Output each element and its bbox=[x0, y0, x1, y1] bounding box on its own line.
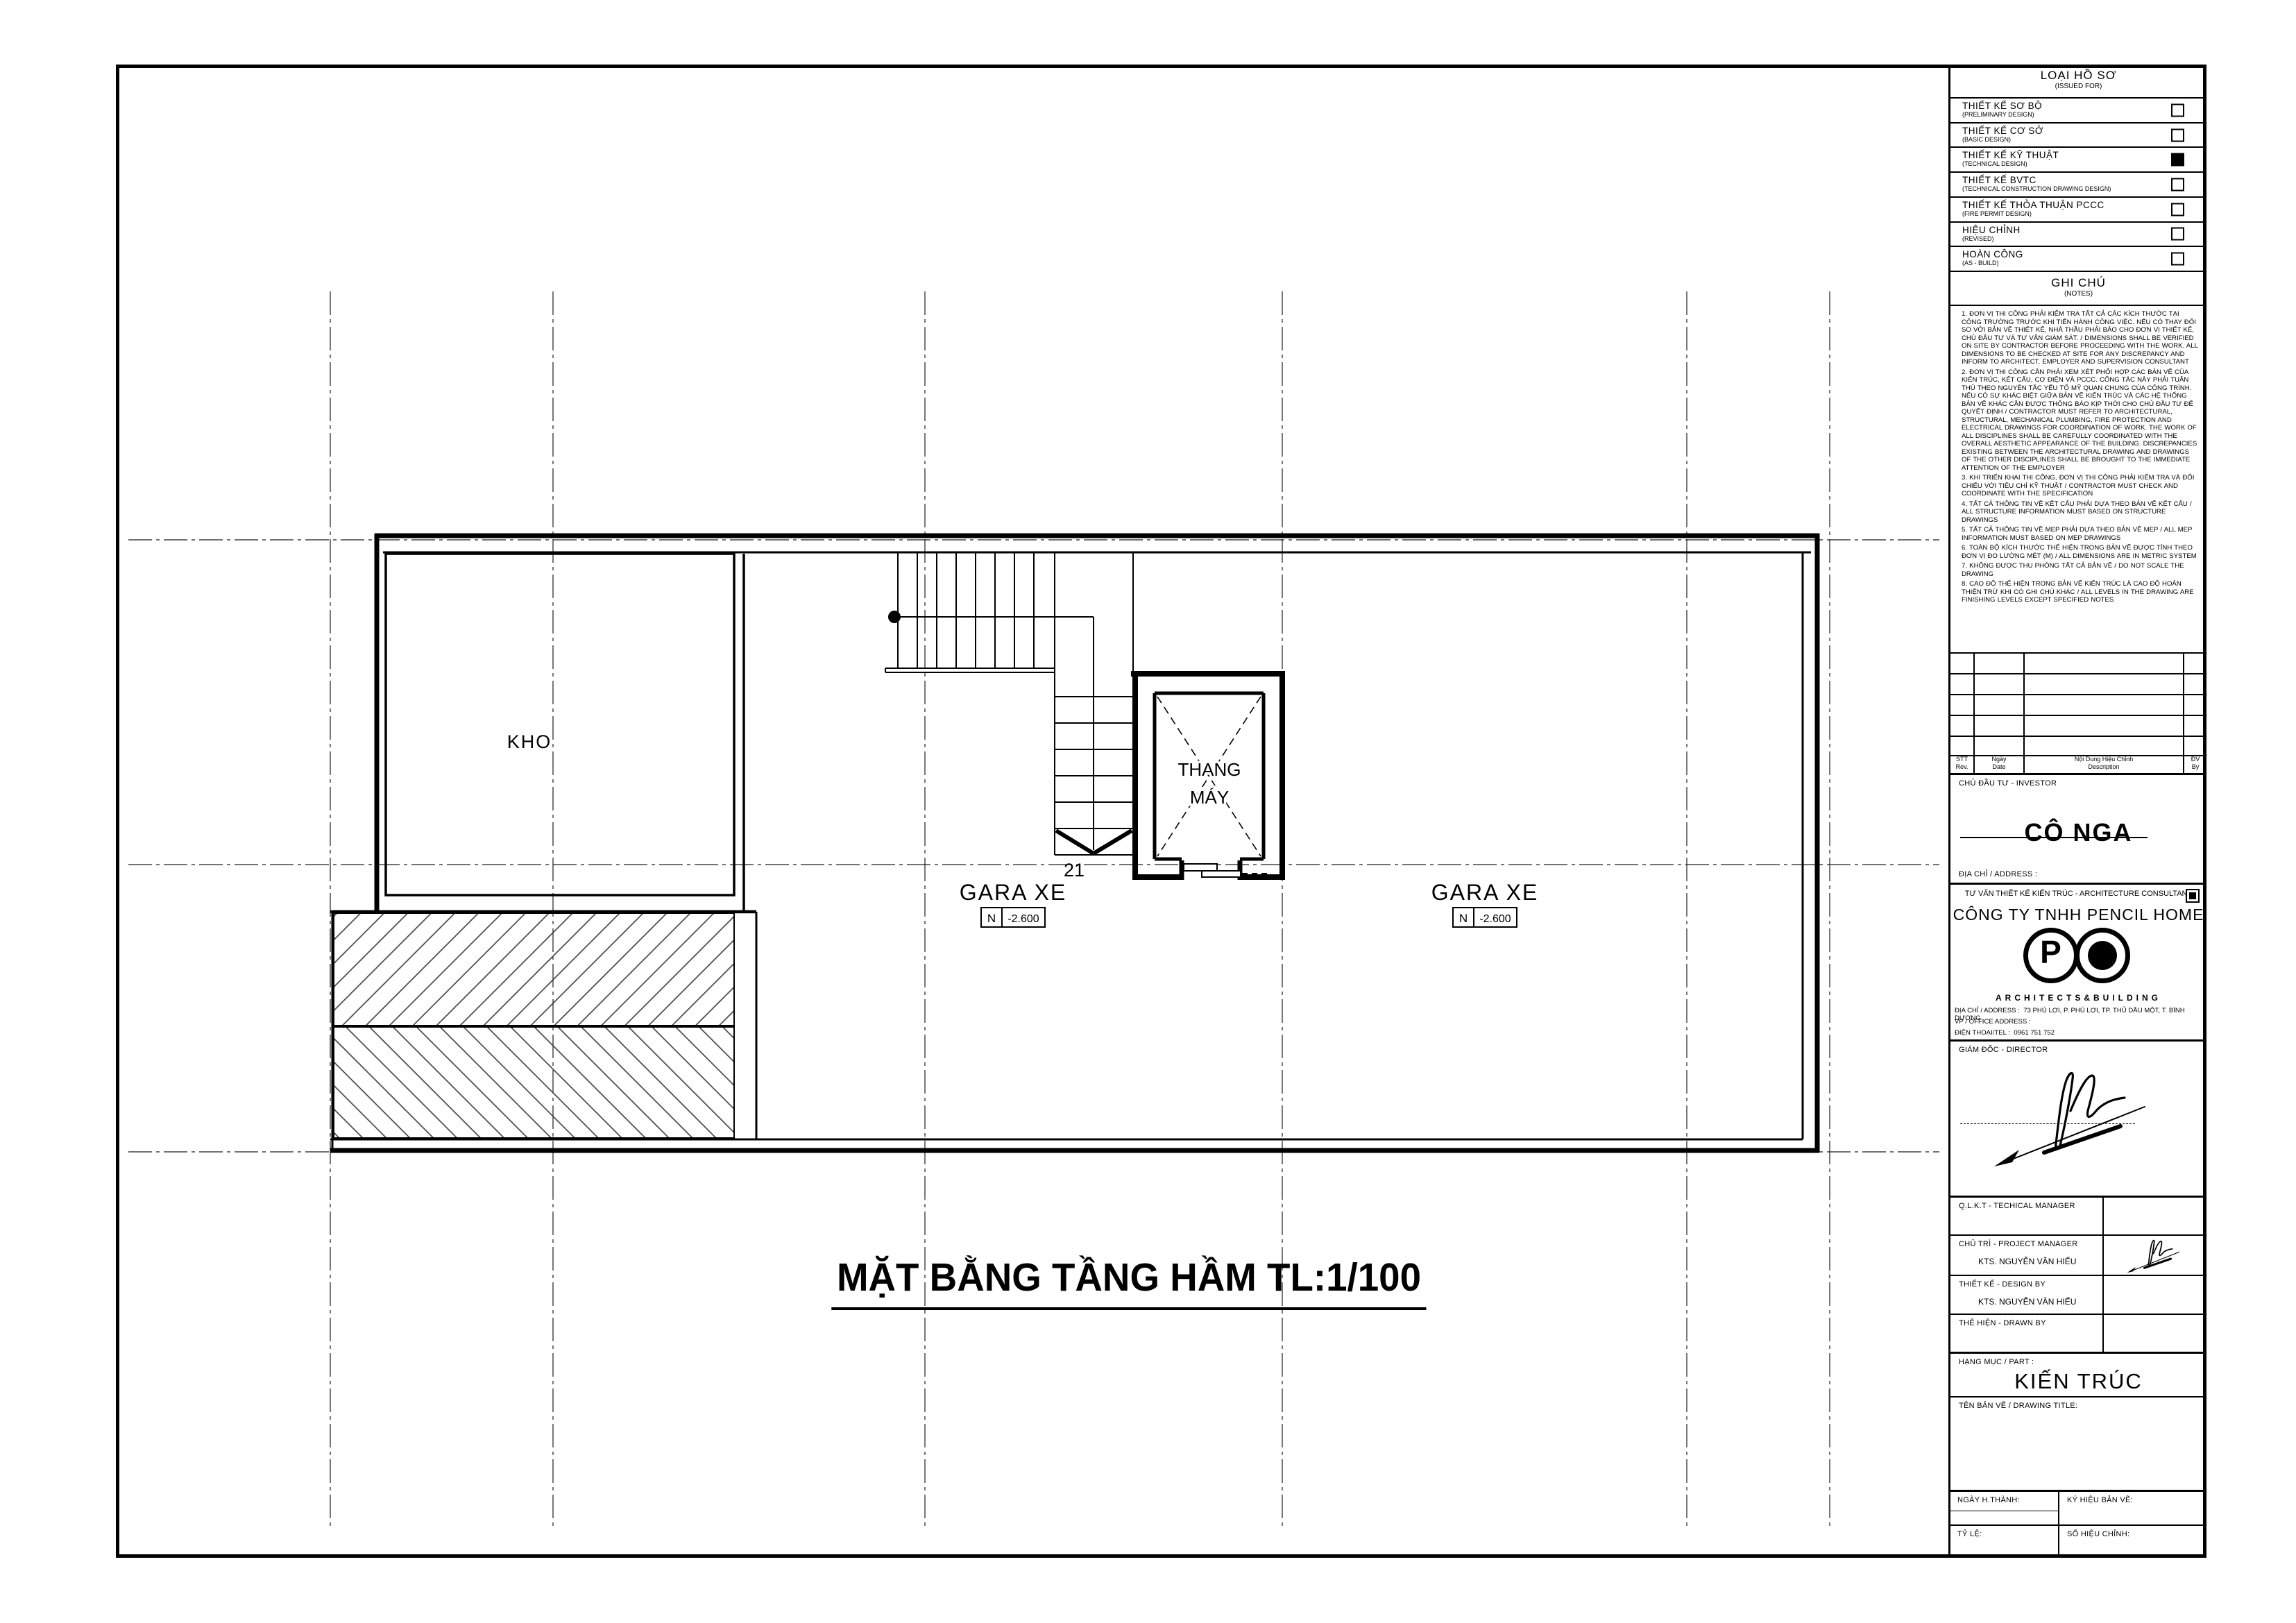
footer-row-1: NGÀY H.THÀNH: KÝ HIỆU BẢN VẼ: bbox=[1950, 1490, 2206, 1524]
kho-room-label: KHO bbox=[507, 731, 552, 752]
investor-name: CÔ NGA bbox=[1950, 818, 2206, 847]
checkbox-icon-checked bbox=[2171, 153, 2184, 167]
design-by-row: THIẾT KẾ - DESIGN BY KTS. NGUYỄN VĂN HIẾ… bbox=[1950, 1275, 2206, 1314]
scale-label: TỶ LỆ: bbox=[1957, 1530, 1982, 1538]
drawing-title-section: TÊN BẢN VẼ / DRAWING TITLE: bbox=[1950, 1396, 2206, 1490]
project-manager-name: KTS. NGUYỄN VĂN HIẾU bbox=[1978, 1257, 2076, 1266]
logo-dot bbox=[2088, 941, 2117, 970]
checkbox-icon bbox=[2171, 103, 2184, 117]
project-manager-signature bbox=[2107, 1239, 2203, 1275]
notes-title: GHI CHÚ bbox=[1950, 272, 2206, 290]
stair-start-dot bbox=[888, 611, 901, 623]
logo-letter: P bbox=[2023, 933, 2079, 971]
drawing-title-label: TÊN BẢN VẼ / DRAWING TITLE: bbox=[1950, 1397, 2206, 1410]
drawing-main-title: MẶT BẰNG TẦNG HẦM TL:1/100 bbox=[831, 1255, 1426, 1310]
technical-manager-label: Q.L.K.T - TECHICAL MANAGER bbox=[1950, 1198, 2206, 1210]
drawn-by-label: THỂ HIỆN - DRAWN BY bbox=[1950, 1315, 2206, 1327]
checkbox-icon bbox=[2171, 228, 2184, 241]
issued-for-row: THIẾT KẾ CƠ SỞ (BASIC DESIGN) bbox=[1950, 122, 2206, 147]
elevator-door-sill bbox=[1184, 864, 1217, 871]
pencil-home-logo: P bbox=[2023, 928, 2134, 987]
consultant-office: VP / OFFICE ADDRESS : bbox=[1955, 1018, 2031, 1026]
rev-col-date: NgàyDate bbox=[1975, 756, 2023, 771]
gara-right: GARA XE N -2.600 bbox=[1431, 880, 1539, 927]
checkbox-icon bbox=[2171, 128, 2184, 142]
consultant-company: CÔNG TY TNHH PENCIL HOME bbox=[1950, 906, 2206, 924]
level-value: -2.600 bbox=[1007, 913, 1039, 925]
consultant-section: TƯ VẤN THIẾT KẾ KIẾN TRÚC - ARCHITECTURE… bbox=[1950, 883, 2206, 1039]
ramp-hatch bbox=[334, 913, 734, 1138]
consultant-label: TƯ VẤN THIẾT KẾ KIẾN TRÚC - ARCHITECTURE… bbox=[1950, 890, 2206, 898]
issued-for-section: LOẠI HỒ SƠ (ISSUED FOR) THIẾT KẾ SƠ BỘ (… bbox=[1950, 65, 2206, 271]
checkbox-icon bbox=[2171, 178, 2184, 192]
project-manager-row: CHỦ TRÌ - PROJECT MANAGER KTS. NGUYỄN VĂ… bbox=[1950, 1234, 2206, 1275]
rev-col-stt: STTRev. bbox=[1950, 756, 1973, 771]
level-datum: N bbox=[987, 912, 996, 925]
stair-count-label: 21 bbox=[1064, 860, 1085, 881]
issued-for-row: THIẾT KẾ SƠ BỘ (PRELIMINARY DESIGN) bbox=[1950, 97, 2206, 122]
level-datum: N bbox=[1459, 912, 1468, 925]
director-label: GIÁM ĐỐC - DIRECTOR bbox=[1950, 1042, 2206, 1054]
checkbox-icon bbox=[2171, 203, 2184, 216]
gara-label: GARA XE bbox=[1431, 880, 1539, 905]
elevator-label-line1: THANG bbox=[1178, 759, 1241, 780]
elevator-label-line2: MÁY bbox=[1190, 787, 1229, 808]
investor-address-label: ĐỊA CHỈ / ADDRESS : bbox=[1959, 870, 2037, 878]
part-label: HẠNG MỤC / PART : bbox=[1950, 1354, 2206, 1366]
drawing-sheet: KHO bbox=[0, 0, 2296, 1623]
revision-number-label: SỐ HIỆU CHỈNH: bbox=[2067, 1530, 2129, 1538]
drawn-by-row: THỂ HIỆN - DRAWN BY bbox=[1950, 1314, 2206, 1352]
technical-manager-row: Q.L.K.T - TECHICAL MANAGER bbox=[1950, 1196, 2206, 1234]
logo-tagline: ARCHITECTS&BUILDING bbox=[1950, 993, 2206, 1003]
issued-for-subtitle: (ISSUED FOR) bbox=[1950, 83, 2206, 90]
gara-left: GARA XE N -2.600 bbox=[960, 880, 1067, 927]
staircase bbox=[885, 552, 1133, 855]
gara-label: GARA XE bbox=[960, 880, 1067, 905]
issued-for-row: THIẾT KẾ KỸ THUẬT (TECHNICAL DESIGN) bbox=[1950, 146, 2206, 171]
consultant-checkbox-icon bbox=[2186, 889, 2200, 903]
issued-for-row: HIỆU CHỈNH (REVISED) bbox=[1950, 221, 2206, 246]
issued-for-title: LOẠI HỒ SƠ bbox=[1950, 65, 2206, 83]
issued-for-row: THIẾT KẾ BVTC (TECHNICAL CONSTRUCTION DR… bbox=[1950, 171, 2206, 196]
footer-row-2: TỶ LỆ: SỐ HIỆU CHỈNH: bbox=[1950, 1524, 2206, 1558]
investor-label: CHỦ ĐẦU TƯ - INVESTOR bbox=[1950, 775, 2206, 788]
part-value: KIẾN TRÚC bbox=[1950, 1369, 2206, 1394]
notes-section: GHI CHÚ (NOTES) 1. ĐƠN VỊ THI CÔNG PHẢI … bbox=[1950, 271, 2206, 652]
part-section: HẠNG MỤC / PART : KIẾN TRÚC bbox=[1950, 1352, 2206, 1396]
notes-subtitle: (NOTES) bbox=[1950, 290, 2206, 298]
issued-for-row: THIẾT KẾ THỎA THUẬN PCCC (FIRE PERMIT DE… bbox=[1950, 196, 2206, 221]
notes-body: 1. ĐƠN VỊ THI CÔNG PHẢI KIỂM TRA TẤT CẢ … bbox=[1950, 305, 2206, 652]
design-by-name: KTS. NGUYỄN VĂN HIẾU bbox=[1978, 1297, 2076, 1307]
checkbox-icon bbox=[2171, 253, 2184, 266]
date-completed-label: NGÀY H.THÀNH: bbox=[1957, 1496, 2020, 1504]
investor-section: CHỦ ĐẦU TƯ - INVESTOR CÔ NGA ĐỊA CHỈ / A… bbox=[1950, 773, 2206, 883]
consultant-tel: ĐIỆN THOẠI/TEL : 0961 751 752 bbox=[1955, 1029, 2055, 1037]
elevator-door-sill bbox=[1202, 871, 1241, 877]
revision-table: STTRev. NgàyDate Nội Dung Hiệu ChỉnhDesc… bbox=[1950, 652, 2206, 773]
rev-col-by: ĐVBy bbox=[2184, 756, 2206, 771]
title-block: LOẠI HỒ SƠ (ISSUED FOR) THIẾT KẾ SƠ BỘ (… bbox=[1948, 65, 2206, 1558]
rev-col-desc: Nội Dung Hiệu ChỉnhDescription bbox=[2025, 756, 2183, 771]
director-signature bbox=[1989, 1068, 2162, 1172]
issued-for-row: HOÀN CÔNG (AS - BUILD) bbox=[1950, 246, 2206, 271]
drawing-symbol-label: KÝ HIỆU BẢN VẼ: bbox=[2067, 1496, 2133, 1504]
grid-lines bbox=[128, 291, 1939, 1527]
level-value: -2.600 bbox=[1479, 913, 1511, 925]
director-section: GIÁM ĐỐC - DIRECTOR bbox=[1950, 1039, 2206, 1196]
design-by-label: THIẾT KẾ - DESIGN BY bbox=[1950, 1276, 2206, 1289]
